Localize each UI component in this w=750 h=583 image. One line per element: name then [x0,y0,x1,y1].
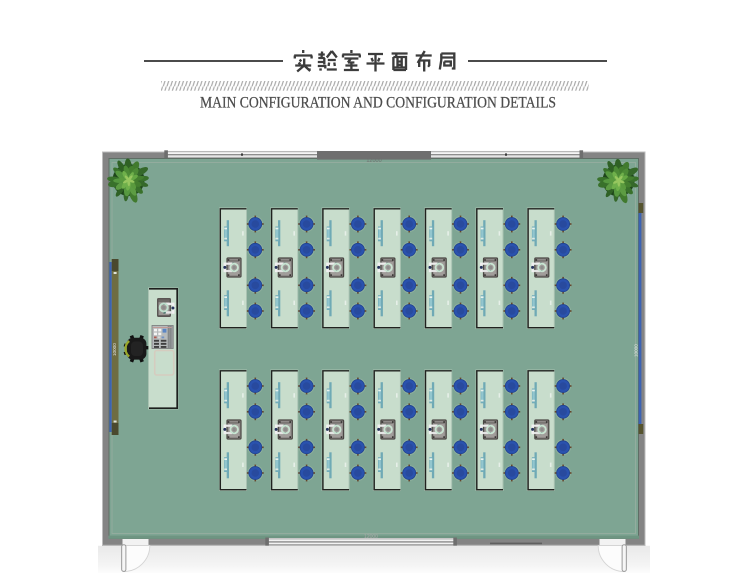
svg-text:12000: 12000 [366,158,381,164]
svg-text:10000: 10000 [112,343,117,356]
svg-text:12000: 12000 [364,534,378,540]
svg-text:MAIN CONFIGURATION AND CONFIGU: MAIN CONFIGURATION AND CONFIGURATION DET… [200,95,556,112]
svg-text:10000: 10000 [633,344,638,357]
